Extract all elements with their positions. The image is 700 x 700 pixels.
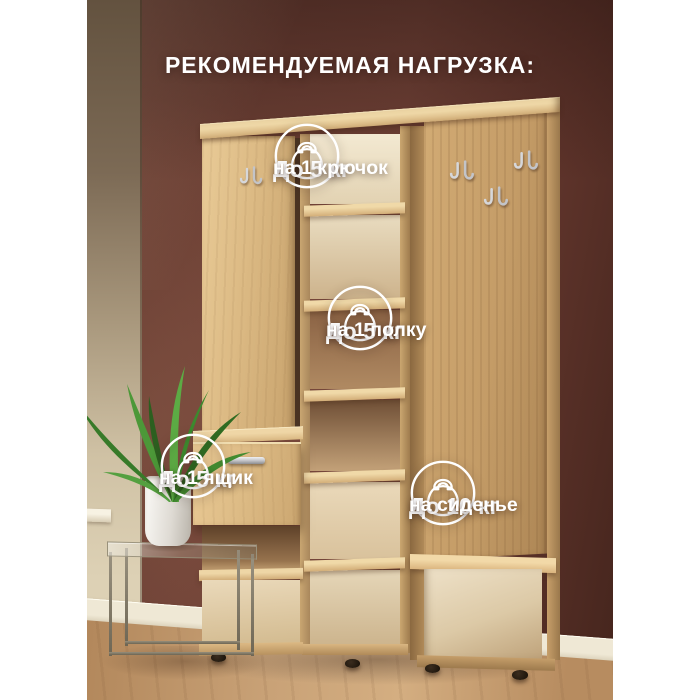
wall-ledge: [87, 509, 111, 523]
right-section-divider: [410, 126, 424, 660]
coat-hook: [483, 186, 511, 214]
furniture-foot: [345, 659, 360, 668]
shelf-compartment: [310, 570, 400, 644]
table-rail: [109, 652, 254, 655]
coat-hook: [513, 150, 541, 178]
shelf-compartment: [310, 482, 400, 559]
load-target: на 1 крючок: [273, 156, 388, 180]
right-end-panel: [547, 104, 560, 660]
table-rail: [125, 641, 240, 644]
table-leg: [125, 548, 128, 646]
furniture-foot: [512, 670, 528, 680]
shelf-compartment: [310, 400, 400, 471]
load-target: на сиденье: [409, 493, 518, 517]
load-target: на 1 полку: [326, 318, 427, 342]
bench-compartment: [424, 569, 542, 659]
table-leg: [251, 554, 254, 656]
coat-hook: [239, 166, 265, 192]
furniture-foot: [425, 664, 440, 673]
table-leg: [109, 552, 112, 656]
product-photo: РЕКОМЕНДУЕМАЯ НАГРУЗКА: До 5 кг на 1 крю…: [87, 0, 613, 700]
page-title: РЕКОМЕНДУЕМАЯ НАГРУЗКА:: [87, 52, 613, 79]
bottom-board: [302, 644, 408, 655]
load-target: на 1 ящик: [159, 466, 253, 490]
coat-hook: [449, 160, 477, 188]
table-leg: [237, 550, 240, 650]
